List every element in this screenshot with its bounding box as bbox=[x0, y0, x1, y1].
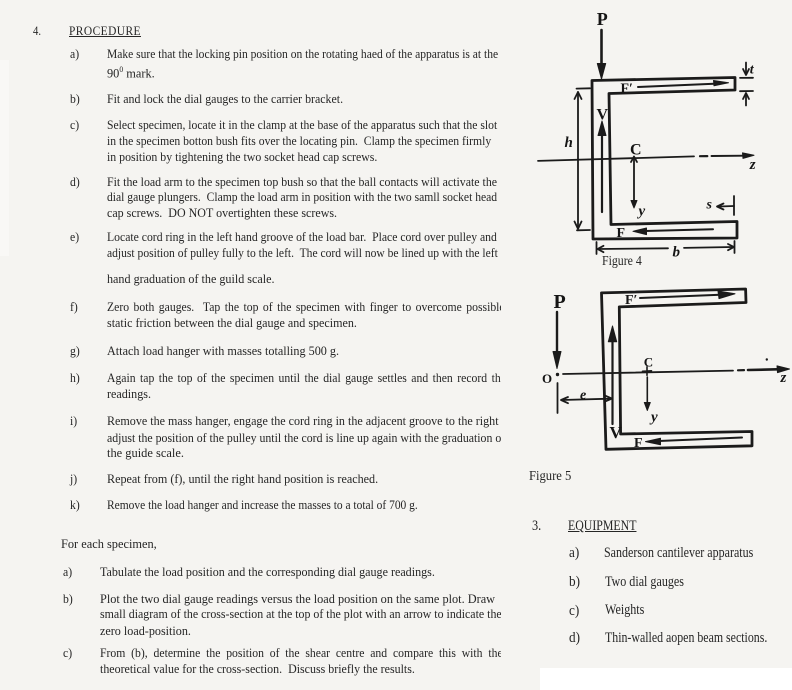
svg-text:y: y bbox=[637, 204, 646, 220]
svg-text:F: F bbox=[634, 436, 643, 451]
svg-text:F′: F′ bbox=[625, 293, 638, 308]
svg-text:z: z bbox=[749, 157, 756, 173]
svg-text:P: P bbox=[597, 9, 608, 29]
svg-text:O: O bbox=[542, 371, 552, 386]
svg-text:h: h bbox=[565, 135, 573, 151]
svg-text:V: V bbox=[610, 423, 623, 442]
svg-text:s: s bbox=[706, 198, 713, 213]
svg-text:P: P bbox=[554, 291, 566, 313]
svg-text:e: e bbox=[580, 388, 586, 403]
svg-text:F: F bbox=[617, 226, 626, 241]
svg-text:F′: F′ bbox=[621, 82, 634, 97]
svg-text:y: y bbox=[649, 410, 658, 426]
svg-text:C: C bbox=[630, 142, 642, 159]
svg-text:b: b bbox=[673, 245, 681, 261]
svg-text:C: C bbox=[644, 355, 653, 370]
svg-text:V: V bbox=[597, 107, 609, 124]
svg-text:z: z bbox=[780, 370, 787, 386]
svg-text:t: t bbox=[750, 63, 755, 78]
